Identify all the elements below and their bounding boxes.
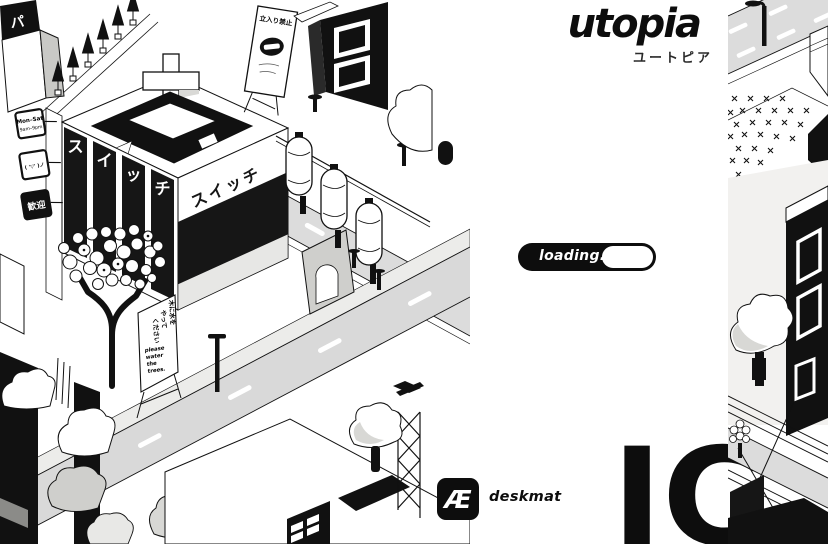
page-title-jp: ユートピア xyxy=(633,47,713,66)
bush-cloud xyxy=(58,408,115,456)
page-title: utopia xyxy=(568,2,700,46)
bollard-icon xyxy=(438,141,453,165)
brand-name: deskmat xyxy=(489,489,561,505)
loading-bar: loading. xyxy=(518,243,656,271)
paper-lantern xyxy=(321,164,347,229)
paper-lantern xyxy=(356,198,382,265)
city-illustration-left: パ xyxy=(0,0,470,544)
potted-trees xyxy=(53,0,139,95)
svg-text:イ: イ xyxy=(96,151,112,170)
loading-label: loading. xyxy=(539,248,605,264)
city-illustration-right xyxy=(728,0,828,544)
deskmat-logo: Æ xyxy=(437,478,479,520)
paper-lantern xyxy=(286,132,312,195)
corner-building: パ xyxy=(0,0,64,112)
corner-sign-text: パ xyxy=(9,14,25,32)
no-entry-sign: 立入り禁止 xyxy=(241,6,297,118)
svg-text:ス: ス xyxy=(67,137,83,156)
edge-tree xyxy=(388,85,432,151)
black-tower-building xyxy=(294,2,388,110)
white-box xyxy=(0,254,24,334)
logo-glyph: Æ xyxy=(444,485,471,514)
svg-text:チ: チ xyxy=(154,179,170,198)
deskmat-artwork: パ xyxy=(0,0,828,544)
svg-text:ッ: ッ xyxy=(125,165,141,184)
strip-building-top xyxy=(810,26,828,96)
loading-remaining-segment xyxy=(602,246,653,268)
